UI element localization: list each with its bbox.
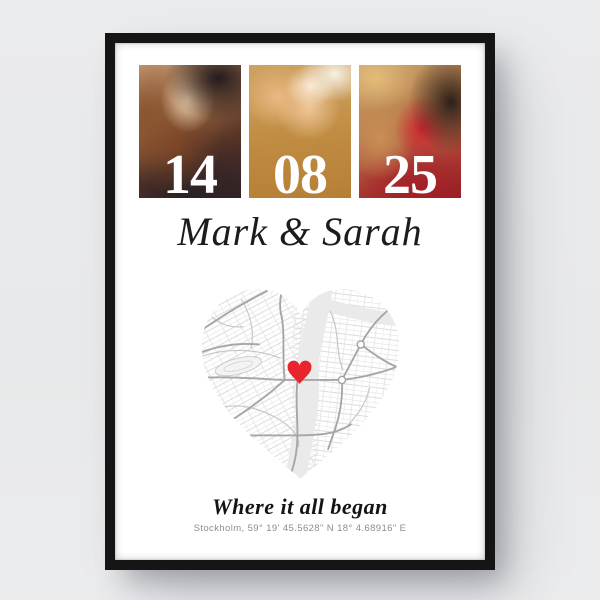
photo-couple-kissing: 14 — [139, 65, 241, 198]
heart-map — [182, 269, 419, 487]
date-day: 14 — [139, 147, 241, 198]
couple-names: Mark & Sarah — [177, 204, 422, 258]
anniversary-poster: 14 08 25 Mark & Sarah — [115, 43, 485, 560]
photo-pinky-promise: 08 — [249, 65, 351, 198]
date-year: 25 — [359, 147, 461, 198]
photo-strip: 14 08 25 — [139, 65, 461, 198]
heart-map-svg — [182, 269, 419, 487]
poster-frame: 14 08 25 Mark & Sarah — [105, 33, 495, 570]
caption-where-it-all-began: Where it all began — [212, 494, 388, 519]
date-month: 08 — [249, 147, 351, 198]
photo-couple-rose: 25 — [359, 65, 461, 198]
location-coordinates: Stockholm, 59° 19' 45.5628" N 18° 4.6891… — [194, 523, 407, 534]
